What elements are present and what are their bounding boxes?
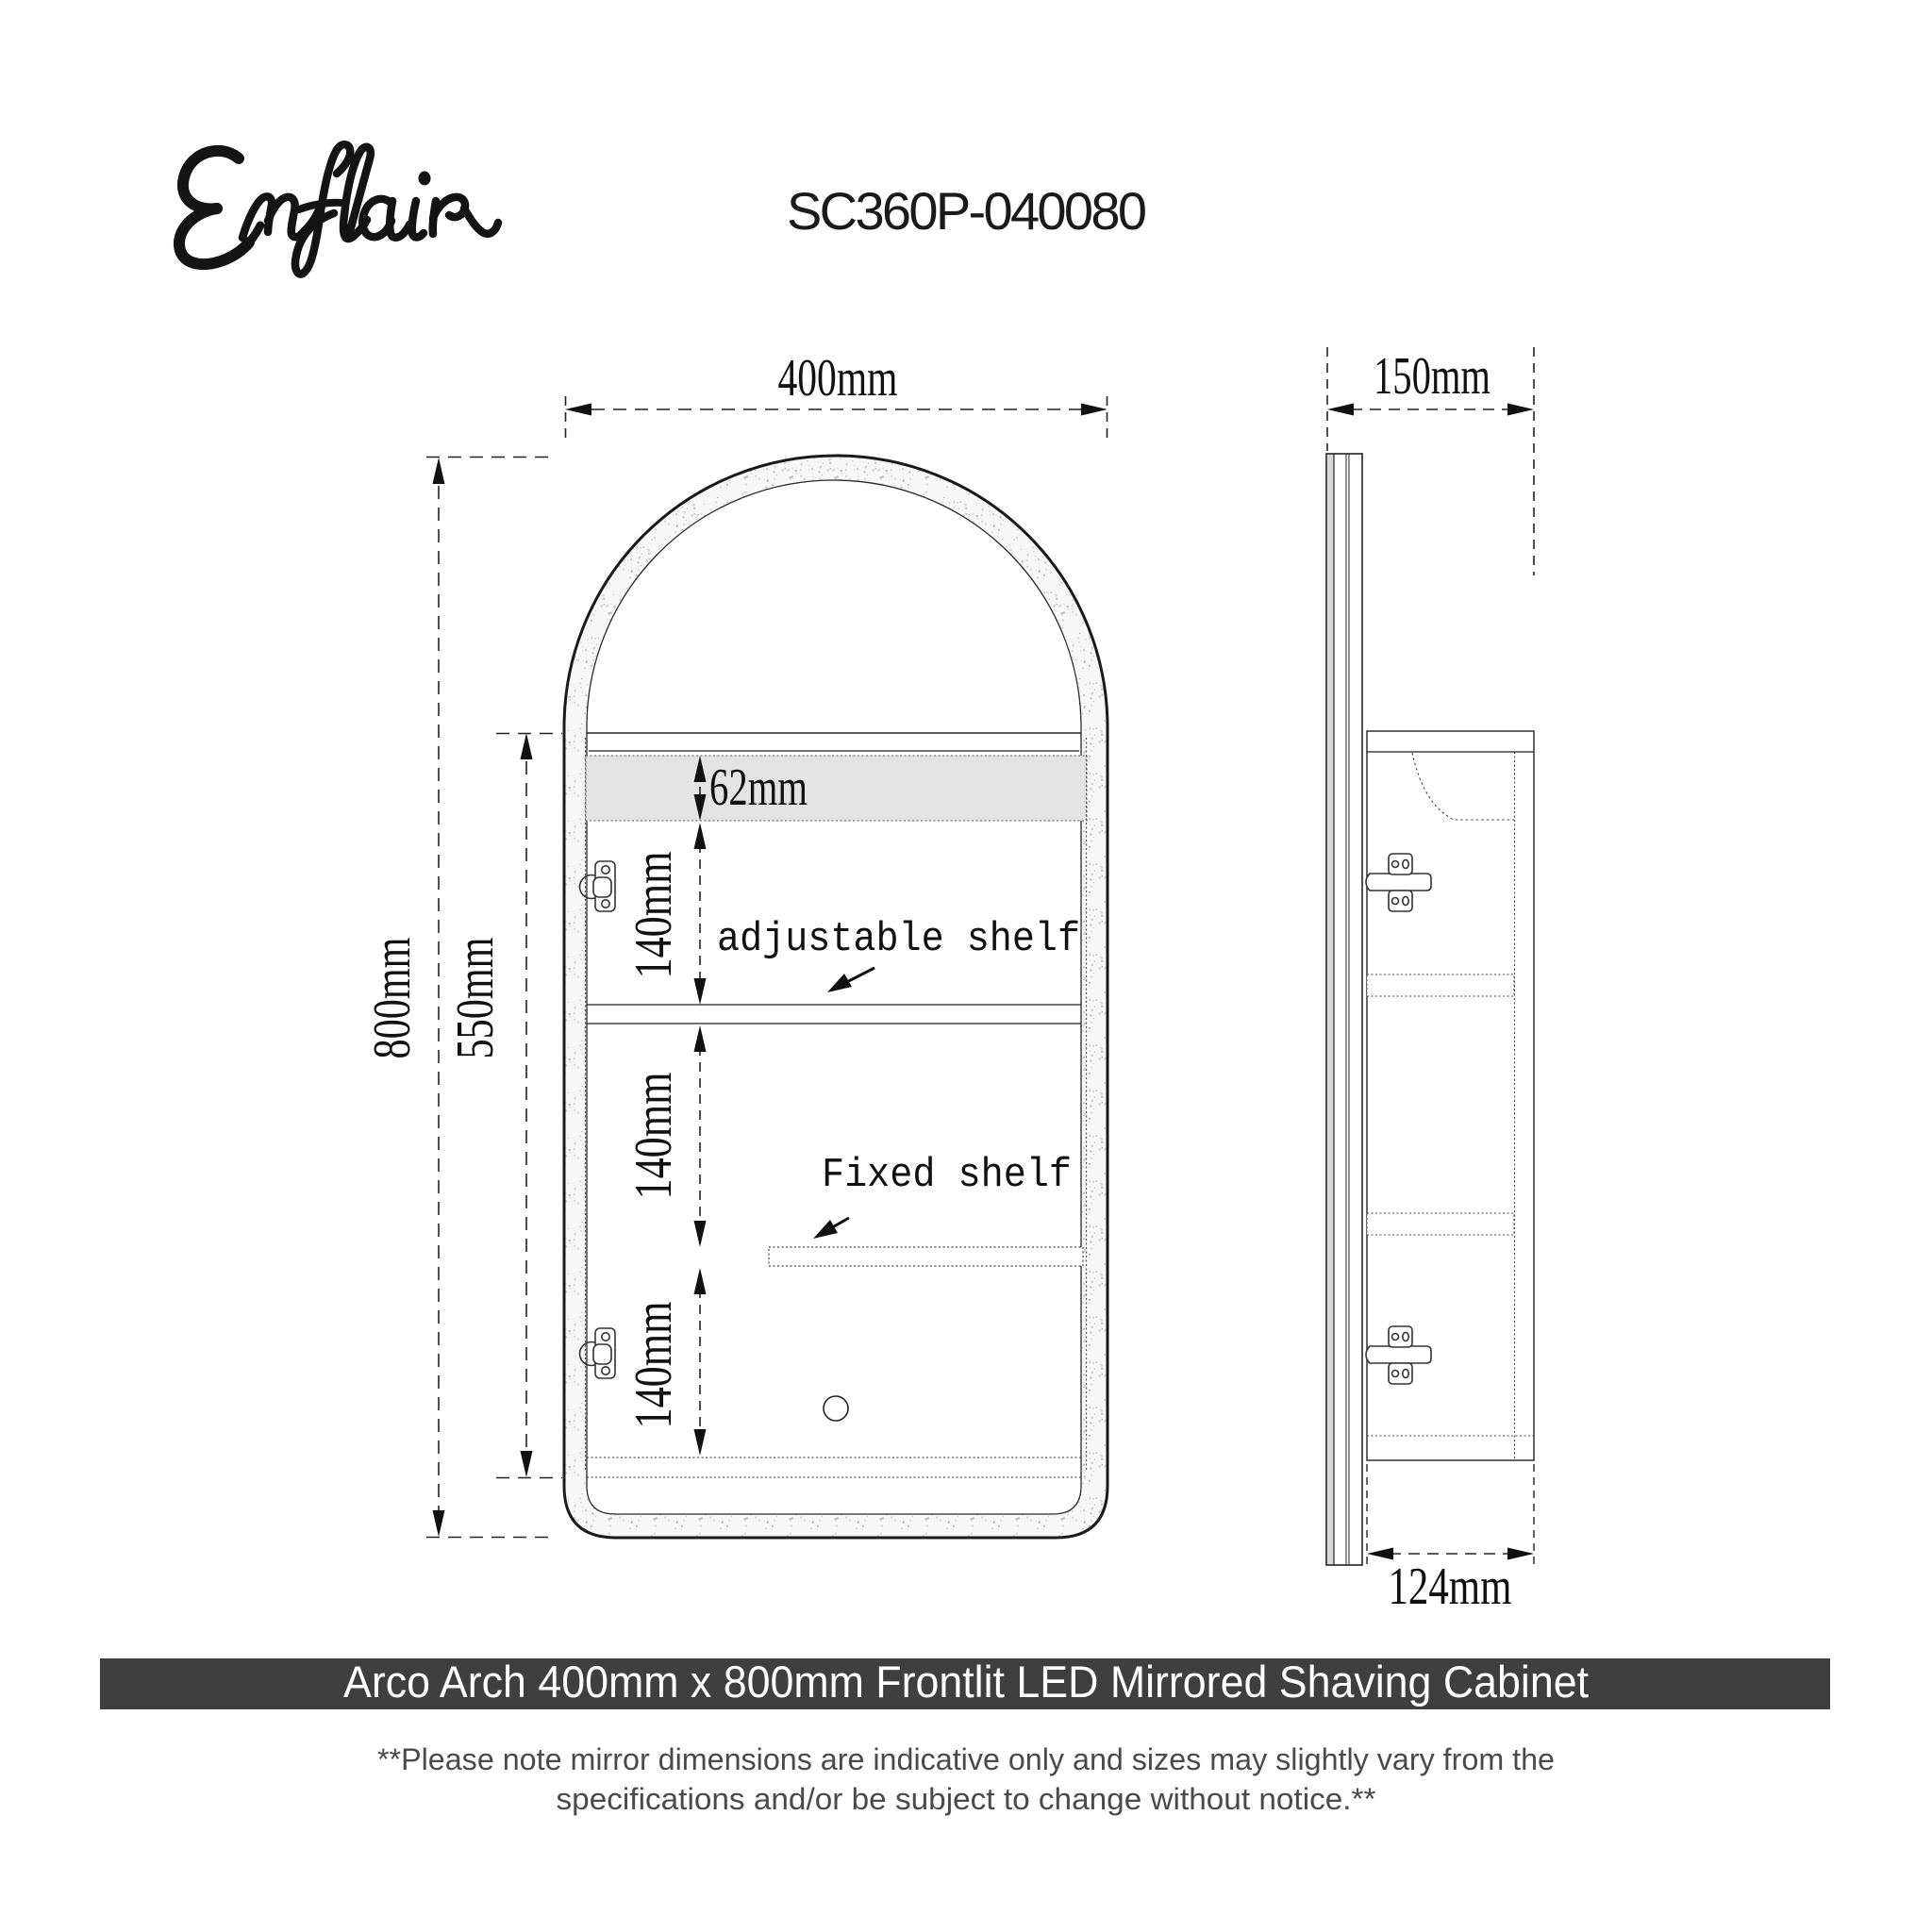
- svg-text:Fixed shelf: Fixed shelf: [822, 1152, 1072, 1199]
- svg-text:140mm: 140mm: [625, 852, 683, 979]
- svg-text:adjustable shelf: adjustable shelf: [717, 916, 1080, 963]
- svg-text:62mm: 62mm: [709, 758, 808, 817]
- svg-text:800mm: 800mm: [363, 938, 422, 1059]
- svg-text:550mm: 550mm: [446, 938, 505, 1059]
- svg-text:**Please note mirror dimension: **Please note mirror dimensions are indi…: [377, 1742, 1555, 1776]
- svg-text:124mm: 124mm: [1389, 1557, 1512, 1616]
- svg-text:140mm: 140mm: [625, 1302, 683, 1429]
- svg-text:SC360P-040080: SC360P-040080: [787, 181, 1147, 241]
- svg-text:140mm: 140mm: [625, 1073, 683, 1200]
- svg-text:Arco Arch 400mm x 800mm Frontl: Arco Arch 400mm x 800mm Frontlit LED Mir…: [343, 1657, 1589, 1707]
- svg-text:specifications and/or be subje: specifications and/or be subject to chan…: [557, 1782, 1376, 1816]
- svg-text:400mm: 400mm: [778, 349, 898, 408]
- svg-text:150mm: 150mm: [1374, 347, 1491, 406]
